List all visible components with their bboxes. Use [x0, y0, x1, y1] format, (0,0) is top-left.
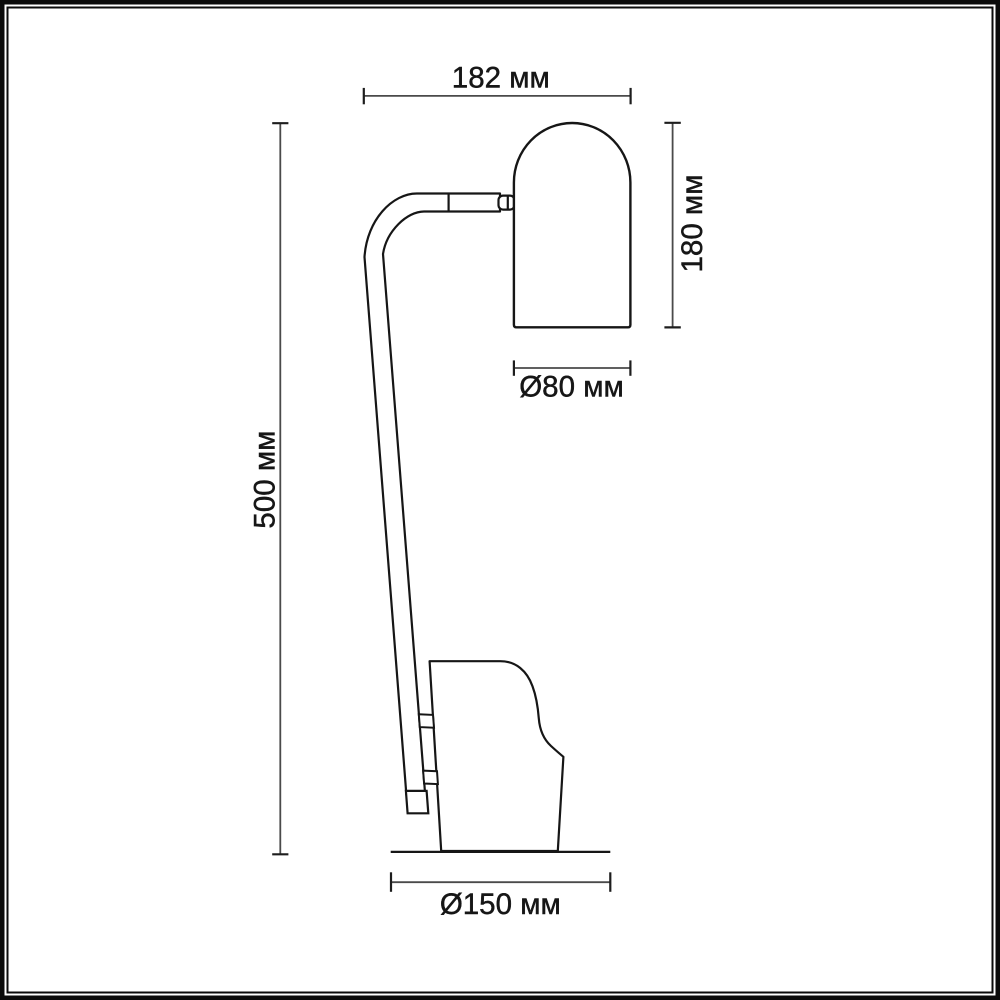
svg-text:Ø80 мм: Ø80 мм — [519, 371, 624, 404]
svg-text:180 мм: 180 мм — [676, 175, 709, 273]
svg-text:Ø150 мм: Ø150 мм — [440, 888, 561, 921]
svg-text:182 мм: 182 мм — [452, 62, 550, 95]
svg-text:500 мм: 500 мм — [249, 431, 282, 529]
